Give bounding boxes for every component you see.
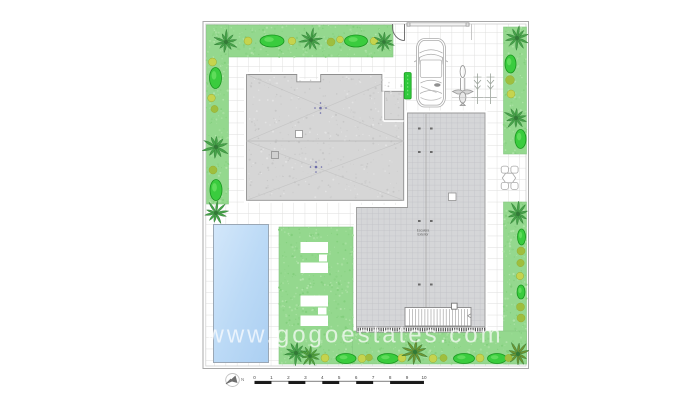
svg-text:2: 2: [287, 375, 290, 380]
svg-text:4: 4: [321, 375, 324, 380]
svg-text:5: 5: [338, 375, 341, 380]
svg-text:9: 9: [406, 375, 409, 380]
svg-text:0: 0: [253, 375, 256, 380]
svg-text:6: 6: [355, 375, 358, 380]
svg-text:3: 3: [304, 375, 307, 380]
svg-text:10: 10: [421, 375, 427, 380]
svg-text:1: 1: [270, 375, 273, 380]
svg-text:Exterior: Exterior: [418, 233, 430, 237]
svg-text:7: 7: [372, 375, 375, 380]
svg-text:N: N: [241, 377, 244, 382]
svg-text:8: 8: [389, 375, 392, 380]
svg-text:www.gogoestates.com: www.gogoestates.com: [206, 322, 504, 349]
